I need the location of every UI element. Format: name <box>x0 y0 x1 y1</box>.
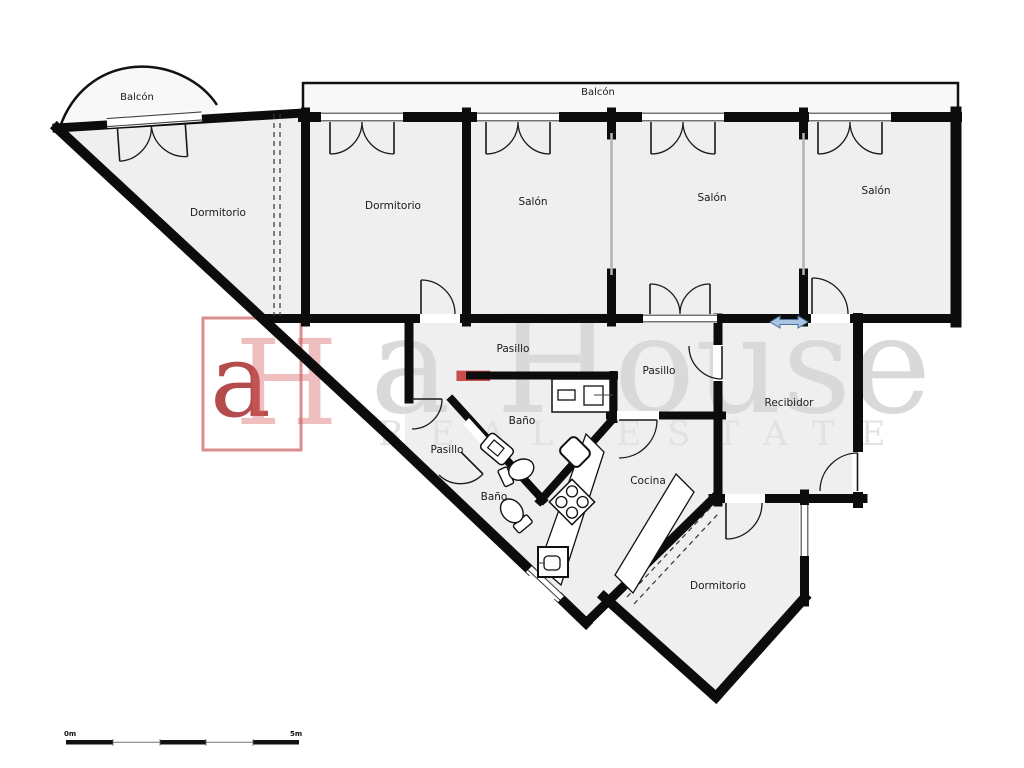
label-balcon-top: Balcón <box>581 86 615 98</box>
room-dormitorio-1-floor <box>60 112 303 320</box>
scale-bar: 0m 5m <box>64 730 302 746</box>
balcony-top-floor <box>303 83 958 112</box>
label-dormitorio-2: Dormitorio <box>365 200 421 212</box>
label-salon-2: Salón <box>697 192 726 204</box>
scale-end-label: 5m <box>290 730 302 738</box>
kitchen-sink <box>538 547 568 577</box>
label-dormitorio-3: Dormitorio <box>690 580 746 592</box>
label-pasillo-2: Pasillo <box>643 365 676 377</box>
label-recibidor: Recibidor <box>765 397 815 409</box>
floorplan-canvas: a H a-House REAL ESTATE <box>0 0 1024 768</box>
bathroom-vanity <box>552 379 613 412</box>
scale-segment-5 <box>253 740 299 745</box>
label-dormitorio-1: Dormitorio <box>190 207 246 219</box>
label-cocina: Cocina <box>630 475 666 487</box>
scale-segment-1 <box>66 740 113 745</box>
label-bano-1: Baño <box>509 415 536 427</box>
scale-segment-3 <box>160 740 206 745</box>
scale-start-label: 0m <box>64 730 76 738</box>
label-salon-3: Salón <box>861 185 890 197</box>
label-bano-2: Baño <box>481 491 508 503</box>
label-salon-1: Salón <box>518 196 547 208</box>
label-balcon-curved: Balcón <box>120 91 154 103</box>
label-pasillo-3: Pasillo <box>431 444 464 456</box>
label-pasillo-1: Pasillo <box>497 343 530 355</box>
floorplan-page: a H a-House REAL ESTATE <box>0 0 1024 768</box>
window-dorm3 <box>799 505 810 556</box>
